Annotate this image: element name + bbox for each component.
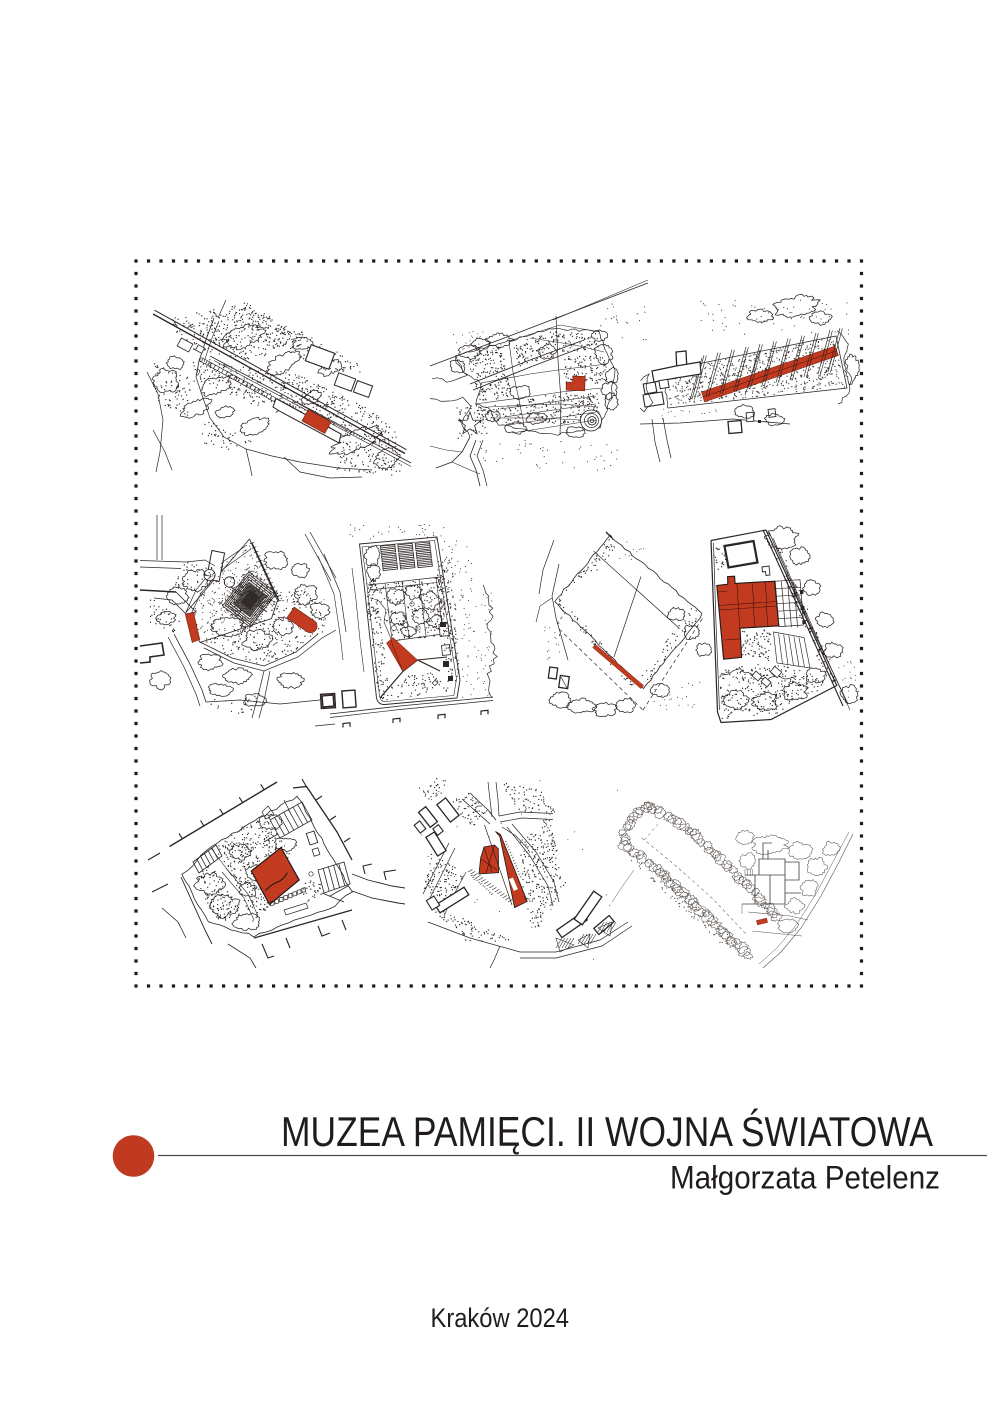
svg-text:MUZEA PAMIĘCI. II WOJNA ŚWIATO: MUZEA PAMIĘCI. II WOJNA ŚWIATOWA [281, 1108, 933, 1155]
svg-text:Małgorzata Petelenz: Małgorzata Petelenz [670, 1160, 940, 1196]
svg-text:Kraków 2024: Kraków 2024 [431, 1303, 570, 1333]
